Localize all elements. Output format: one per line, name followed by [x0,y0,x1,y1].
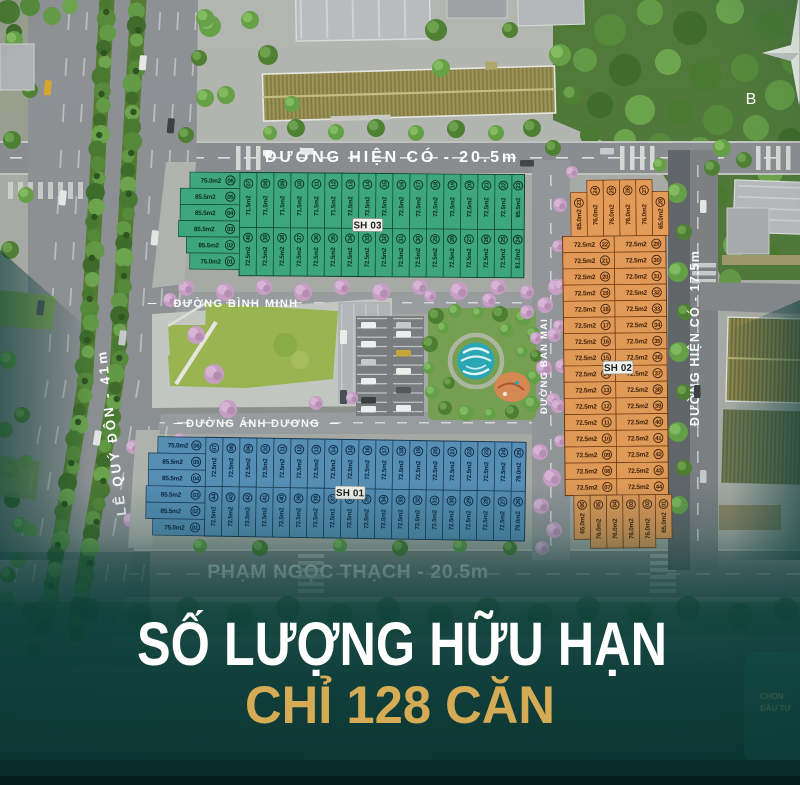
svg-text:CHỈ 128 CĂN: CHỈ 128 CĂN [245,675,555,735]
svg-text:ĐẦU TƯ: ĐẦU TƯ [760,703,791,713]
svg-text:SỐ LƯỢNG HỮU HẠN: SỐ LƯỢNG HỮU HẠN [137,610,667,678]
svg-text:CHỌN: CHỌN [760,692,784,701]
